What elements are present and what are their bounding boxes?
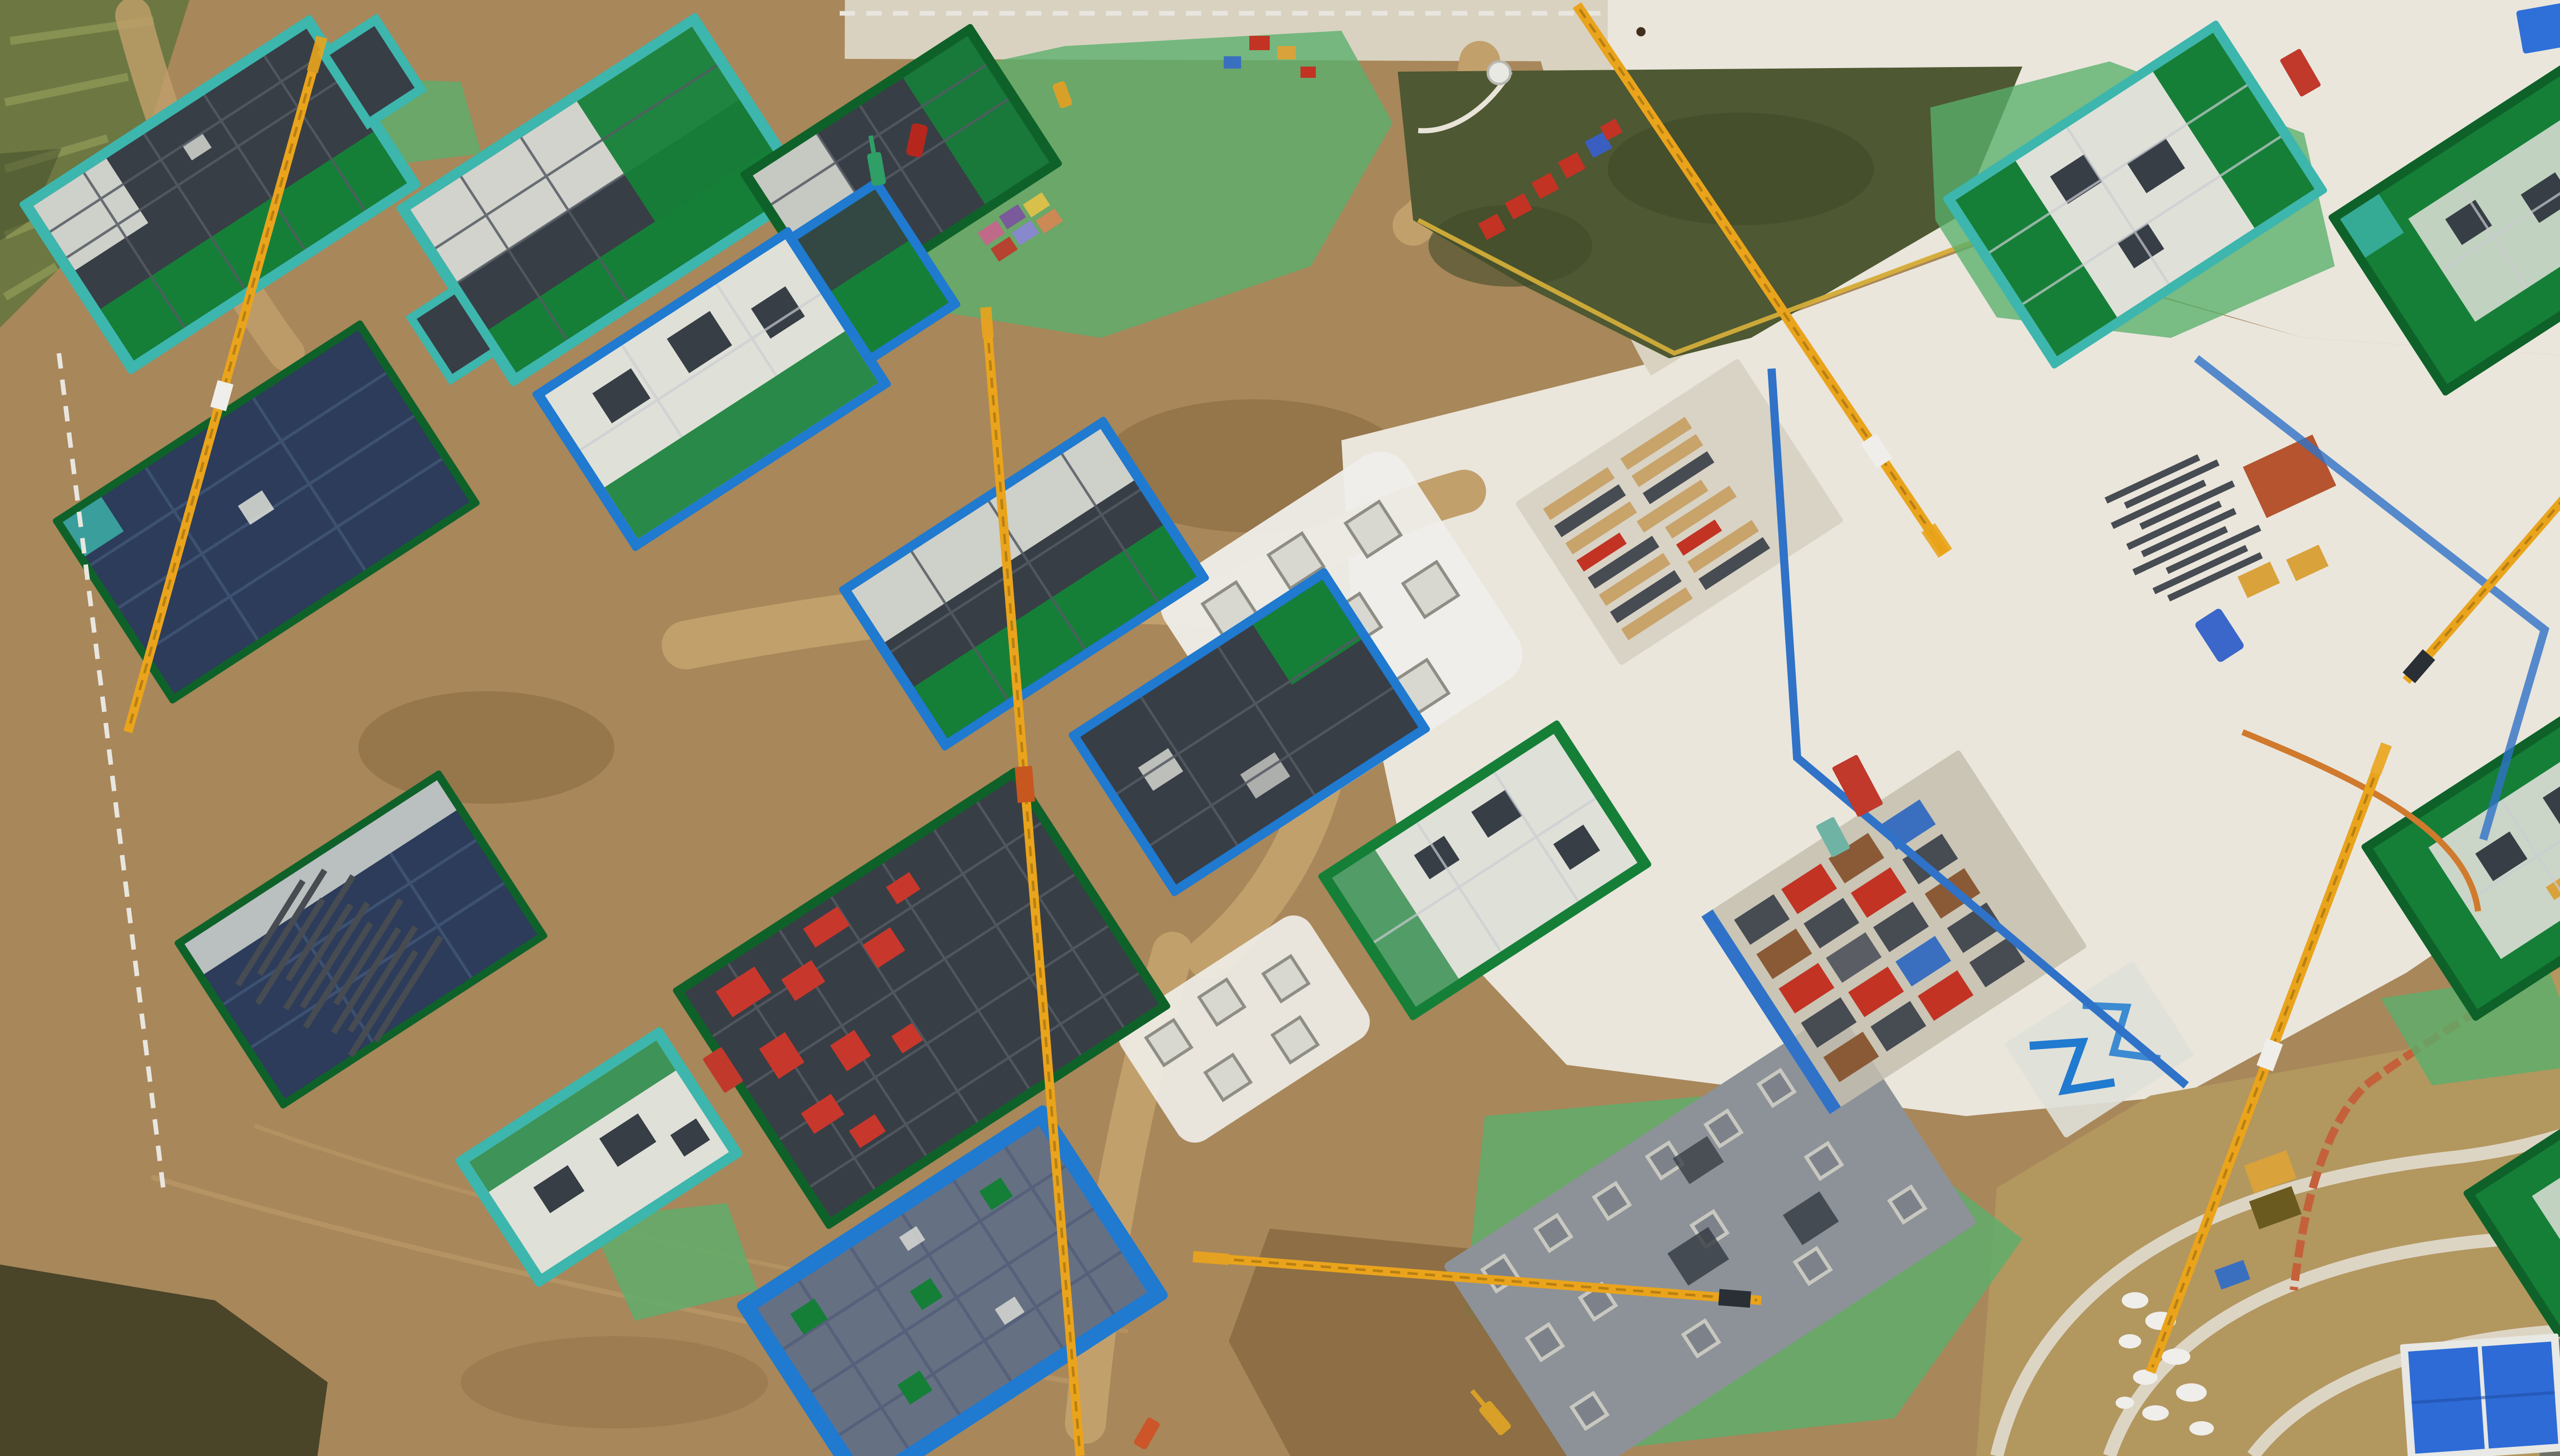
aerial-photo-construction-site <box>0 0 2560 1456</box>
lawn-dark-patch <box>1608 113 1874 225</box>
wet-soil-patch <box>461 1336 768 1428</box>
white-round-tank <box>1488 61 1510 84</box>
scene-canvas <box>0 0 2560 1456</box>
top-road <box>845 28 1608 31</box>
blue-roof-shed <box>2400 1333 2560 1456</box>
wet-soil-patch <box>358 691 614 804</box>
lawn-dark-patch <box>1428 205 1592 287</box>
motorbike <box>1636 27 1646 36</box>
